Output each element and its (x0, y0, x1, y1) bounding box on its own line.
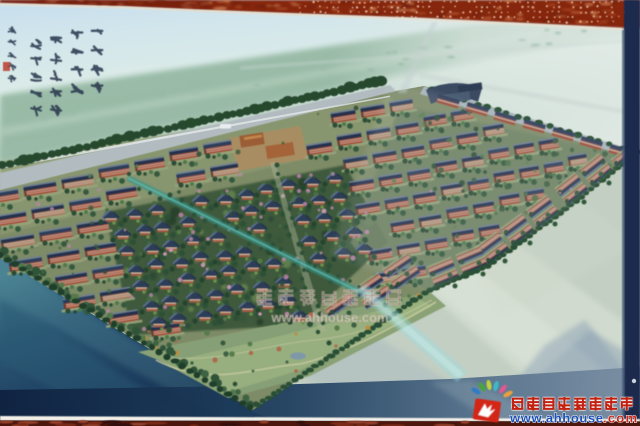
svg-text:.com: .com (603, 411, 637, 426)
svg-text:www.ahhouse.com: www.ahhouse.com (270, 310, 388, 325)
svg-text:www.ahhouse: www.ahhouse (509, 411, 603, 426)
